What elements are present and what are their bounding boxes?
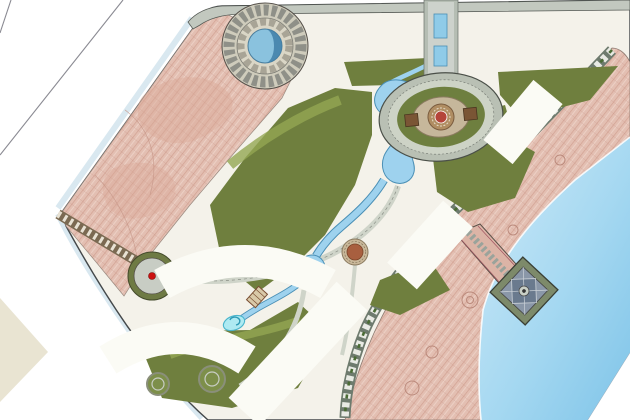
amphitheater-circle — [342, 239, 368, 265]
entry-axis — [424, 0, 458, 80]
master-plan-stage — [0, 0, 630, 420]
master-plan-canvas — [0, 0, 630, 420]
entry-circle-plaza — [222, 3, 308, 89]
